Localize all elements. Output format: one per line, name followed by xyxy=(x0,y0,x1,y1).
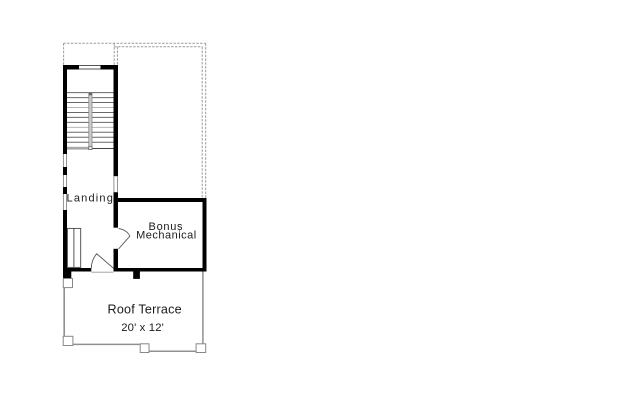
svg-text:Roof Terrace: Roof Terrace xyxy=(108,302,182,316)
svg-text:Mechanical: Mechanical xyxy=(136,229,197,241)
svg-text:Landing: Landing xyxy=(67,193,115,205)
svg-text:20' x 12': 20' x 12' xyxy=(121,322,164,334)
